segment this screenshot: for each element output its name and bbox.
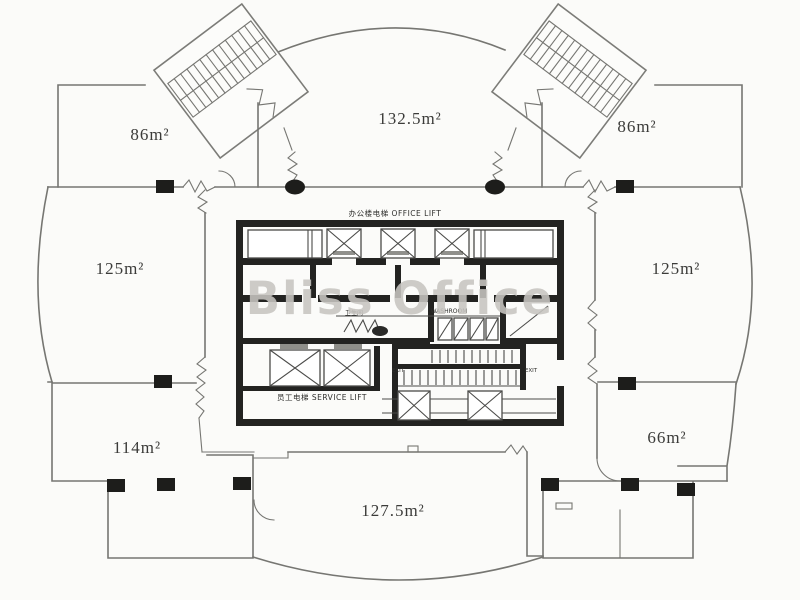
column-marker	[621, 478, 639, 491]
column-marker	[677, 483, 695, 496]
core-shafts	[382, 391, 556, 420]
office-lift-label: 办公楼电梯 OFFICE LIFT	[349, 208, 442, 218]
room-label-bottom-left: 114m²	[113, 438, 161, 457]
room-label-top-right: 86m²	[617, 117, 656, 136]
column-marker	[541, 478, 559, 491]
column-marker	[107, 479, 125, 492]
office-lift-bank	[248, 229, 553, 258]
service-lift-bank	[270, 344, 370, 386]
floor-plan-page: 办公楼电梯 OFFICE LIFT 员工电梯 SERVICE LIFT 卫生间 …	[0, 0, 800, 600]
room-label-top-center: 132.5m²	[378, 109, 442, 128]
exit-left-label: EXIT	[392, 368, 405, 374]
room-label-bottom-center: 127.5m²	[361, 501, 425, 520]
column-marker	[616, 180, 634, 193]
room-label-mid-left: 125m²	[96, 259, 145, 278]
service-lift-label: 员工电梯 SERVICE LIFT	[277, 392, 367, 402]
column-dot	[485, 180, 505, 195]
room-label-mid-right: 125m²	[652, 259, 701, 278]
floor-plan-svg: 办公楼电梯 OFFICE LIFT 员工电梯 SERVICE LIFT 卫生间 …	[0, 0, 800, 600]
column-marker	[233, 477, 251, 490]
column-dot	[285, 180, 305, 195]
core-stair	[398, 344, 520, 386]
exit-right-label: EXIT	[525, 368, 538, 374]
column-marker	[157, 478, 175, 491]
room-label-top-left: 86m²	[130, 125, 169, 144]
column-marker	[618, 377, 636, 390]
column-marker	[156, 180, 174, 193]
watermark-text: Bliss Office	[246, 272, 554, 325]
room-label-bottom-right: 66m²	[647, 428, 686, 447]
column-marker	[154, 375, 172, 388]
stair-wing-top-left	[154, 4, 308, 158]
